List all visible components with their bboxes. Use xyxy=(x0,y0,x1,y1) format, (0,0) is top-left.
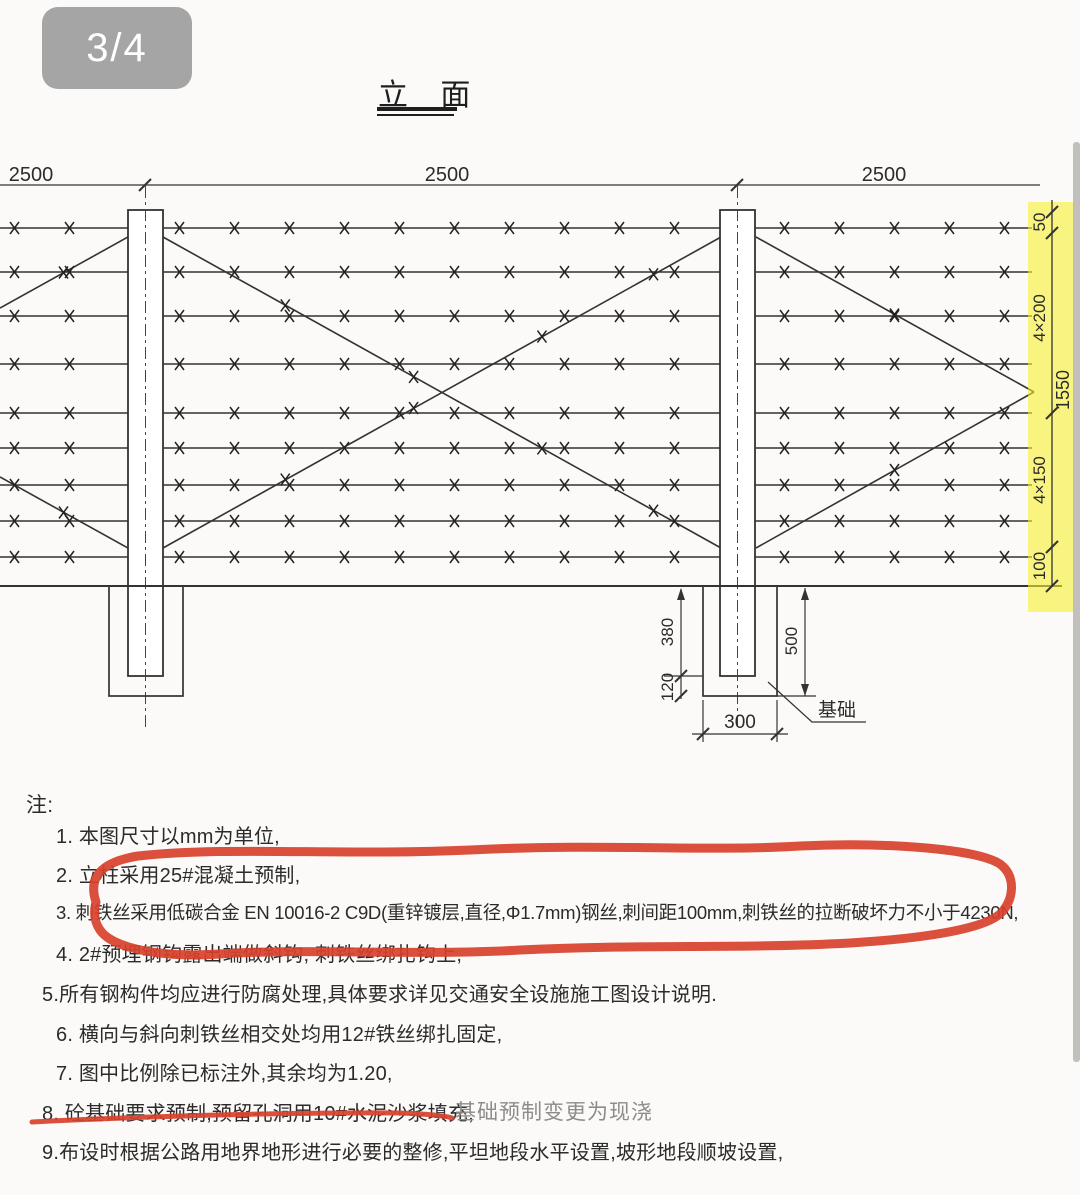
dim-overall-height: 1550 xyxy=(1053,370,1073,410)
notes-heading: 注: xyxy=(26,789,53,819)
note-item-4: 4. 2#预埋钢钩露出端做斜钩, 刺铁丝绑扎钩上, xyxy=(56,938,462,967)
dim-gap-top: 50 xyxy=(1030,213,1049,232)
title-underline-thin xyxy=(377,114,454,116)
note-item-5: 5.所有钢构件均应进行防腐处理,具体要求详见交通安全设施施工图设计说明. xyxy=(42,978,717,1007)
note-item-8: 8. 砼基础要求预制,预留孔洞用10#水泥沙浆填充, xyxy=(42,1097,474,1126)
note-item-7: 7. 图中比例除已标注外,其余均为1.20, xyxy=(56,1057,393,1086)
page-indicator-badge: 3/4 xyxy=(42,7,192,89)
dim-upper-wires: 4×200 xyxy=(1030,294,1049,342)
fence-elevation-drawing: 2500 2500 2500 50 4×200 4×150 100 1550 xyxy=(0,0,1080,780)
dim-width-300: 300 xyxy=(724,712,756,733)
dim-gap-bottom: 100 xyxy=(1030,552,1049,580)
dim-depth-500: 500 xyxy=(782,627,801,655)
dim-span-middle: 2500 xyxy=(425,164,470,186)
note-item-9: 9.布设时根据公路用地界地形进行必要的整修,平坦地段水平设置,坡形地段顺坡设置, xyxy=(42,1136,783,1165)
page-indicator-label: 3/4 xyxy=(86,26,148,71)
note-item-3: 3. 刺铁丝采用低碳合金 EN 10016-2 C9D(重锌镀层,直径,Φ1.7… xyxy=(56,899,1018,925)
dim-below-120: 120 xyxy=(658,673,677,701)
scrollbar-thumb[interactable] xyxy=(1073,142,1080,1062)
title-underline-thick xyxy=(377,107,457,111)
foundation-label: 基础 xyxy=(818,699,856,721)
note-item-1: 1. 本图尺寸以mm为单位, xyxy=(56,820,280,849)
concrete-posts xyxy=(128,210,755,676)
dim-embed-380: 380 xyxy=(658,618,677,646)
dim-lower-wires: 4×150 xyxy=(1030,456,1049,504)
revision-note: 基础预制变更为现浇 xyxy=(455,1096,653,1126)
post-centerlines xyxy=(146,186,738,730)
dim-span-right: 2500 xyxy=(862,164,907,186)
note-item-6: 6. 横向与斜向刺铁丝相交处均用12#铁丝绑扎固定, xyxy=(56,1018,502,1047)
dim-span-left: 2500 xyxy=(9,164,54,186)
note-item-2: 2. 立柱采用25#混凝土预制, xyxy=(56,859,300,888)
